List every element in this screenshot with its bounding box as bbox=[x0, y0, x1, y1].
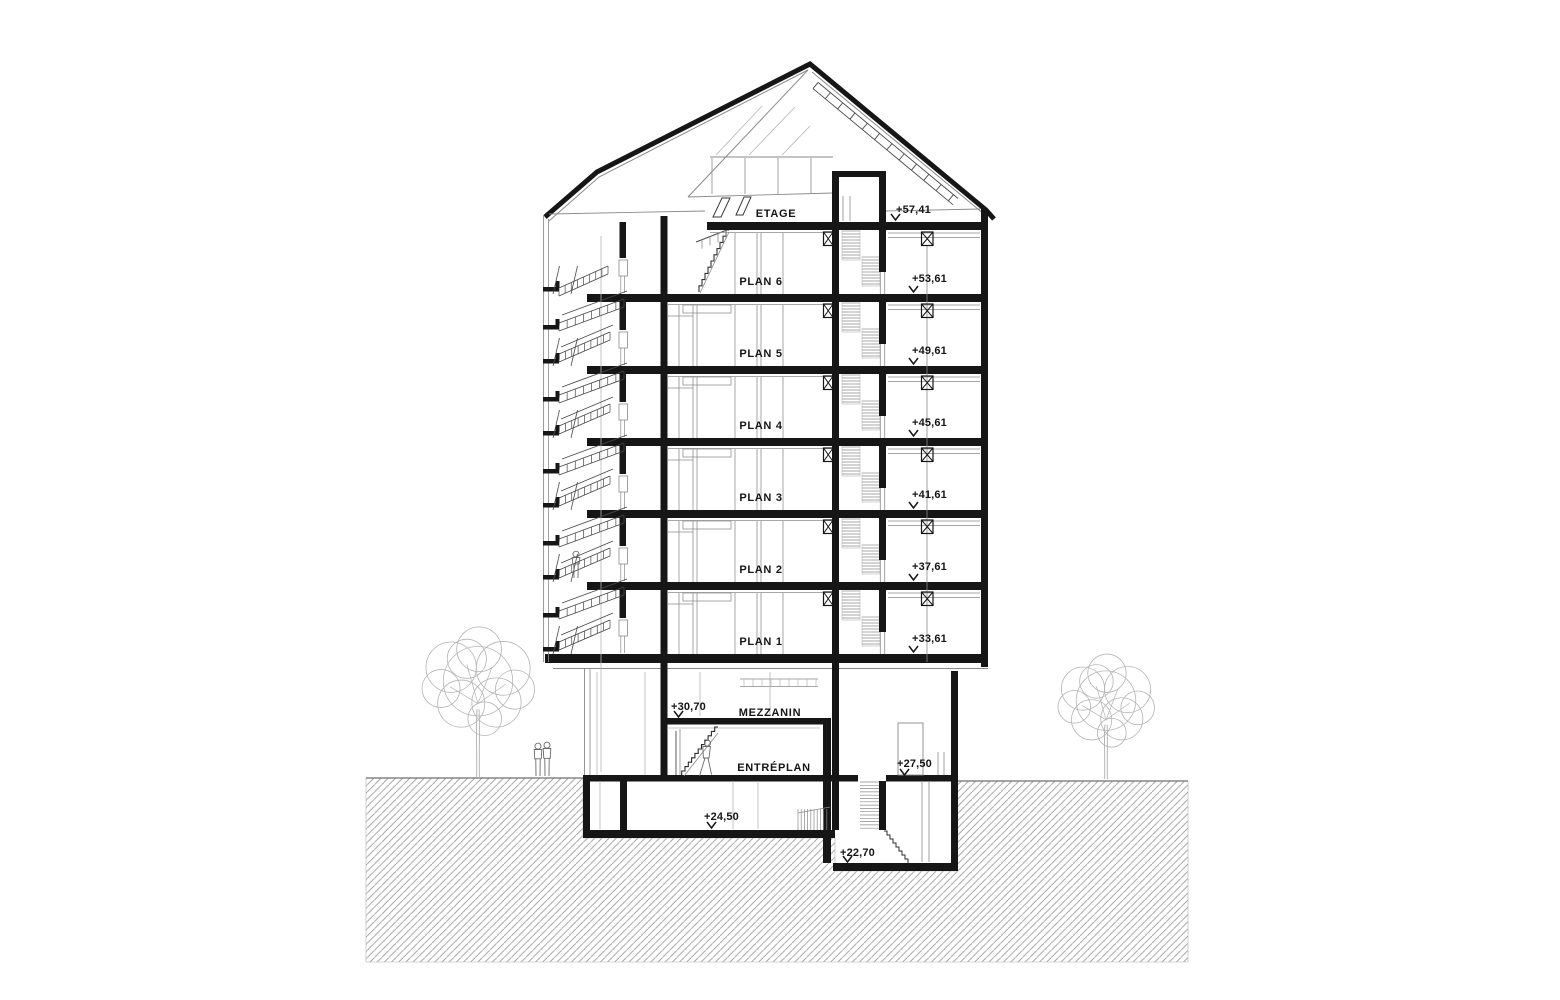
floor-label-entr-plan: ENTRÉPLAN bbox=[737, 761, 811, 774]
floor-label-etage: ETAGE bbox=[756, 208, 797, 220]
elevation-label: +27,50 bbox=[897, 758, 932, 770]
elevation-label: +41,61 bbox=[912, 489, 947, 501]
floor-label-plan-2: PLAN 2 bbox=[739, 564, 782, 576]
floor-label-plan-3: PLAN 3 bbox=[739, 492, 782, 504]
elevation-label: +53,61 bbox=[912, 273, 947, 285]
elevation-label: +30,70 bbox=[671, 701, 706, 713]
elevation-label: +33,61 bbox=[912, 633, 947, 645]
elevation-label: +57,41 bbox=[896, 204, 931, 216]
floor-label-plan-5: PLAN 5 bbox=[739, 348, 782, 360]
elevation-label: +37,61 bbox=[912, 561, 947, 573]
floor-label-plan-4: PLAN 4 bbox=[739, 420, 783, 432]
architectural-section-page: Building cross-section drawing ETAGE+57,… bbox=[0, 0, 1560, 1000]
elevation-label: +24,50 bbox=[704, 811, 739, 823]
elevation-label: +49,61 bbox=[912, 345, 947, 357]
elevation-label: +22,70 bbox=[840, 847, 875, 859]
elevation-label: +45,61 bbox=[912, 417, 947, 429]
floor-label-mezzanin: MEZZANIN bbox=[739, 707, 801, 719]
building-section-drawing: Building cross-section drawing ETAGE+57,… bbox=[0, 0, 1560, 1000]
floor-label-plan-6: PLAN 6 bbox=[739, 276, 782, 288]
floor-label-plan-1: PLAN 1 bbox=[739, 636, 782, 648]
